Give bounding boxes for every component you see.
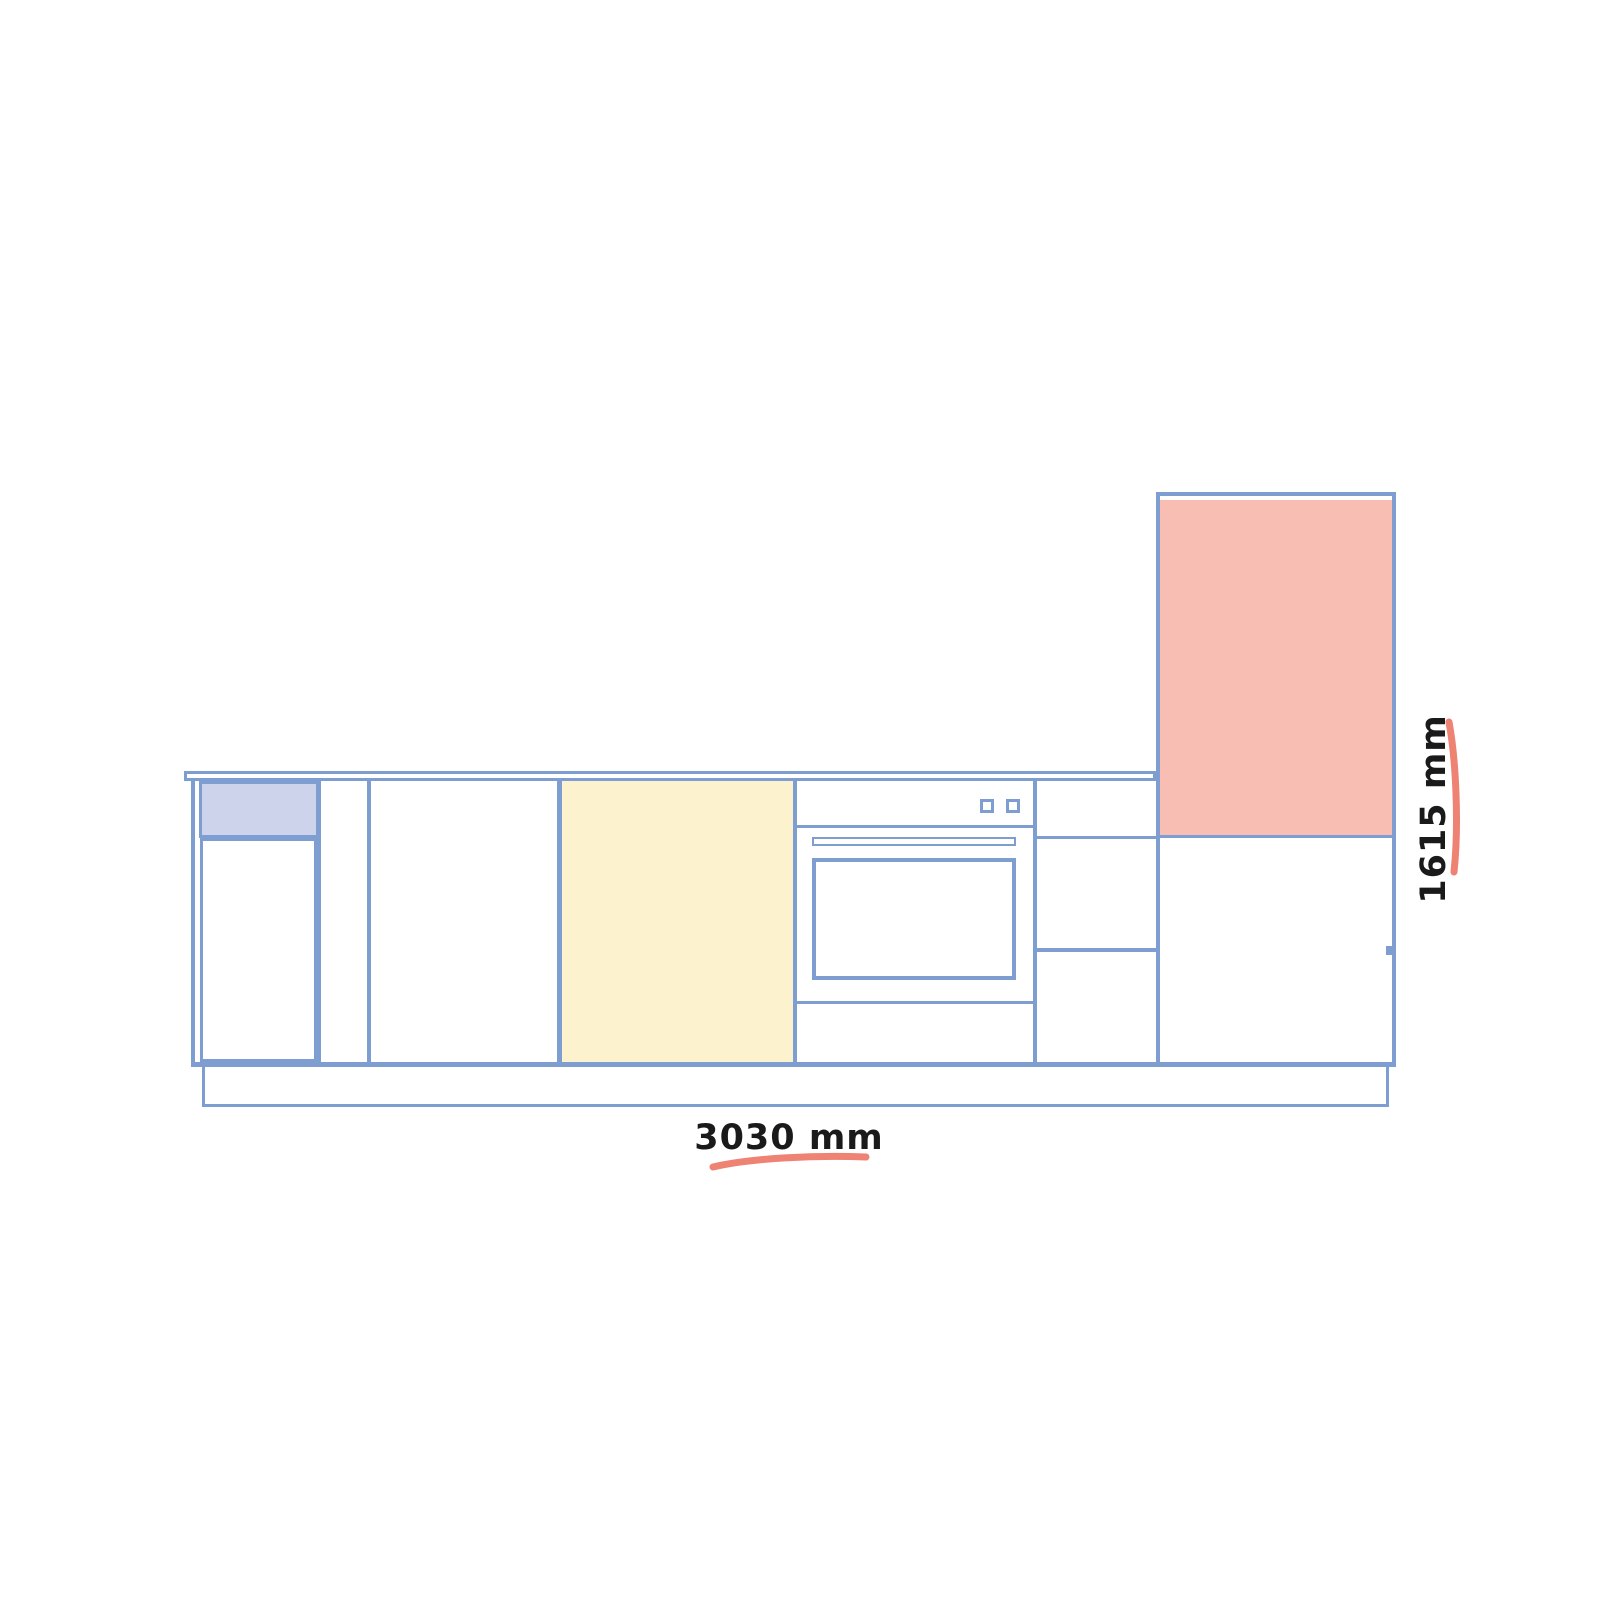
- left-base-door[interactable]: [200, 838, 317, 1062]
- kitchen-elevation-canvas: 3030 mm 1615 mm: [0, 0, 1601, 1601]
- tall-door-handle: [1386, 946, 1392, 955]
- highlighted-base-panel[interactable]: [562, 781, 793, 1062]
- base-run-left-edge: [191, 781, 195, 1062]
- countertop: [184, 771, 1156, 781]
- mid-column-bottom-drawer[interactable]: [1037, 952, 1156, 1062]
- narrow-base-panel[interactable]: [321, 781, 367, 1062]
- oven-knob-left: [980, 799, 994, 813]
- mid-column-top-drawer[interactable]: [1037, 781, 1156, 836]
- oven-knob-right: [1006, 799, 1020, 813]
- wide-base-door[interactable]: [371, 781, 557, 1062]
- highlighted-tall-door[interactable]: [1160, 500, 1392, 838]
- oven-door-window: [812, 858, 1016, 980]
- oven-base-drawer[interactable]: [797, 1004, 1033, 1062]
- height-dimension-label: 1615 mm: [1414, 709, 1454, 909]
- oven-control-panel-divider: [797, 825, 1033, 828]
- width-dimension-label: 3030 mm: [659, 1118, 919, 1158]
- mid-column-middle-drawer[interactable]: [1037, 839, 1156, 948]
- highlighted-drawer-front[interactable]: [199, 781, 319, 838]
- oven-door-handle: [812, 837, 1016, 846]
- tall-cabinet-lower-door[interactable]: [1160, 838, 1392, 1062]
- plinth: [202, 1067, 1389, 1107]
